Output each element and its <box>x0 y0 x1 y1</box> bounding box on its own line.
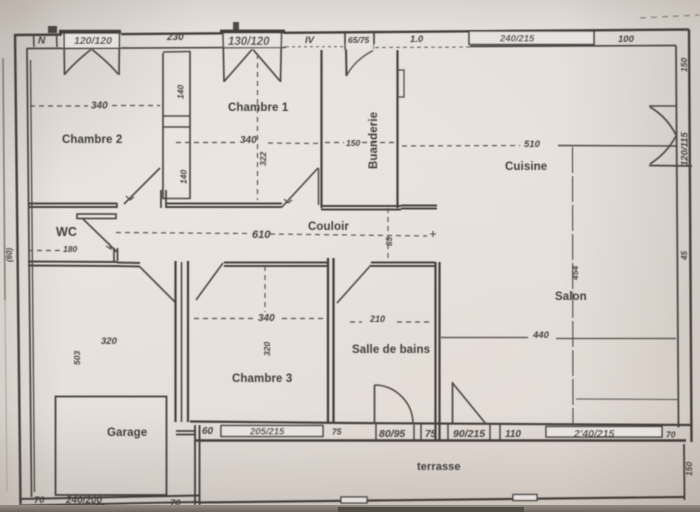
svg-text:205/215: 205/215 <box>249 427 285 438</box>
svg-text:(60): (60) <box>5 247 14 262</box>
svg-text:75: 75 <box>332 427 342 437</box>
svg-text:454: 454 <box>570 266 580 281</box>
svg-text:230: 230 <box>166 32 184 43</box>
svg-text:240/215: 240/215 <box>499 34 535 45</box>
svg-text:75: 75 <box>425 429 437 440</box>
svg-text:140: 140 <box>179 170 189 184</box>
svg-text:Chambre 2: Chambre 2 <box>62 134 122 146</box>
svg-text:70: 70 <box>666 430 676 440</box>
svg-text:100: 100 <box>618 34 635 45</box>
svg-text:85: 85 <box>385 237 394 246</box>
svg-text:Garage: Garage <box>107 427 147 439</box>
svg-text:45: 45 <box>680 251 689 261</box>
svg-text:Salon: Salon <box>555 291 587 303</box>
svg-text:1.0: 1.0 <box>410 34 424 45</box>
svg-text:Buanderie: Buanderie <box>368 112 380 169</box>
svg-text:Chambre 1: Chambre 1 <box>228 102 289 114</box>
svg-text:2'40/215: 2'40/215 <box>573 428 615 440</box>
svg-text:N: N <box>38 36 46 47</box>
svg-text:340: 340 <box>258 313 275 324</box>
svg-text:140: 140 <box>176 85 186 99</box>
svg-text:IV: IV <box>305 35 315 46</box>
svg-text:320: 320 <box>101 336 118 347</box>
svg-text:440: 440 <box>532 330 550 341</box>
svg-text:150: 150 <box>684 462 694 476</box>
svg-text:340: 340 <box>240 135 257 146</box>
svg-text:80/95: 80/95 <box>379 428 405 440</box>
svg-text:Cuisine: Cuisine <box>505 161 547 173</box>
svg-text:120/120: 120/120 <box>74 35 112 47</box>
svg-text:180: 180 <box>63 244 77 254</box>
svg-text:503: 503 <box>72 351 82 365</box>
svg-text:65/75: 65/75 <box>348 35 370 45</box>
svg-text:120/115: 120/115 <box>680 132 691 166</box>
svg-text:110: 110 <box>505 429 521 440</box>
svg-text:510: 510 <box>524 139 541 150</box>
svg-text:150: 150 <box>346 138 360 148</box>
svg-text:Salle de bains: Salle de bains <box>352 344 430 356</box>
svg-text:terrasse: terrasse <box>417 461 461 473</box>
svg-text:150: 150 <box>679 58 689 72</box>
svg-text:Chambre 3: Chambre 3 <box>232 373 292 385</box>
svg-text:610: 610 <box>252 229 271 241</box>
svg-text:Couloir: Couloir <box>308 221 349 233</box>
svg-text:320: 320 <box>262 342 272 356</box>
svg-text:130/120: 130/120 <box>228 36 270 48</box>
svg-text:90/215: 90/215 <box>453 428 485 440</box>
svg-text:322: 322 <box>258 152 268 166</box>
svg-text:WC: WC <box>56 225 77 239</box>
svg-text:210: 210 <box>369 314 385 324</box>
svg-text:60: 60 <box>202 426 214 437</box>
svg-text:340: 340 <box>91 101 108 112</box>
